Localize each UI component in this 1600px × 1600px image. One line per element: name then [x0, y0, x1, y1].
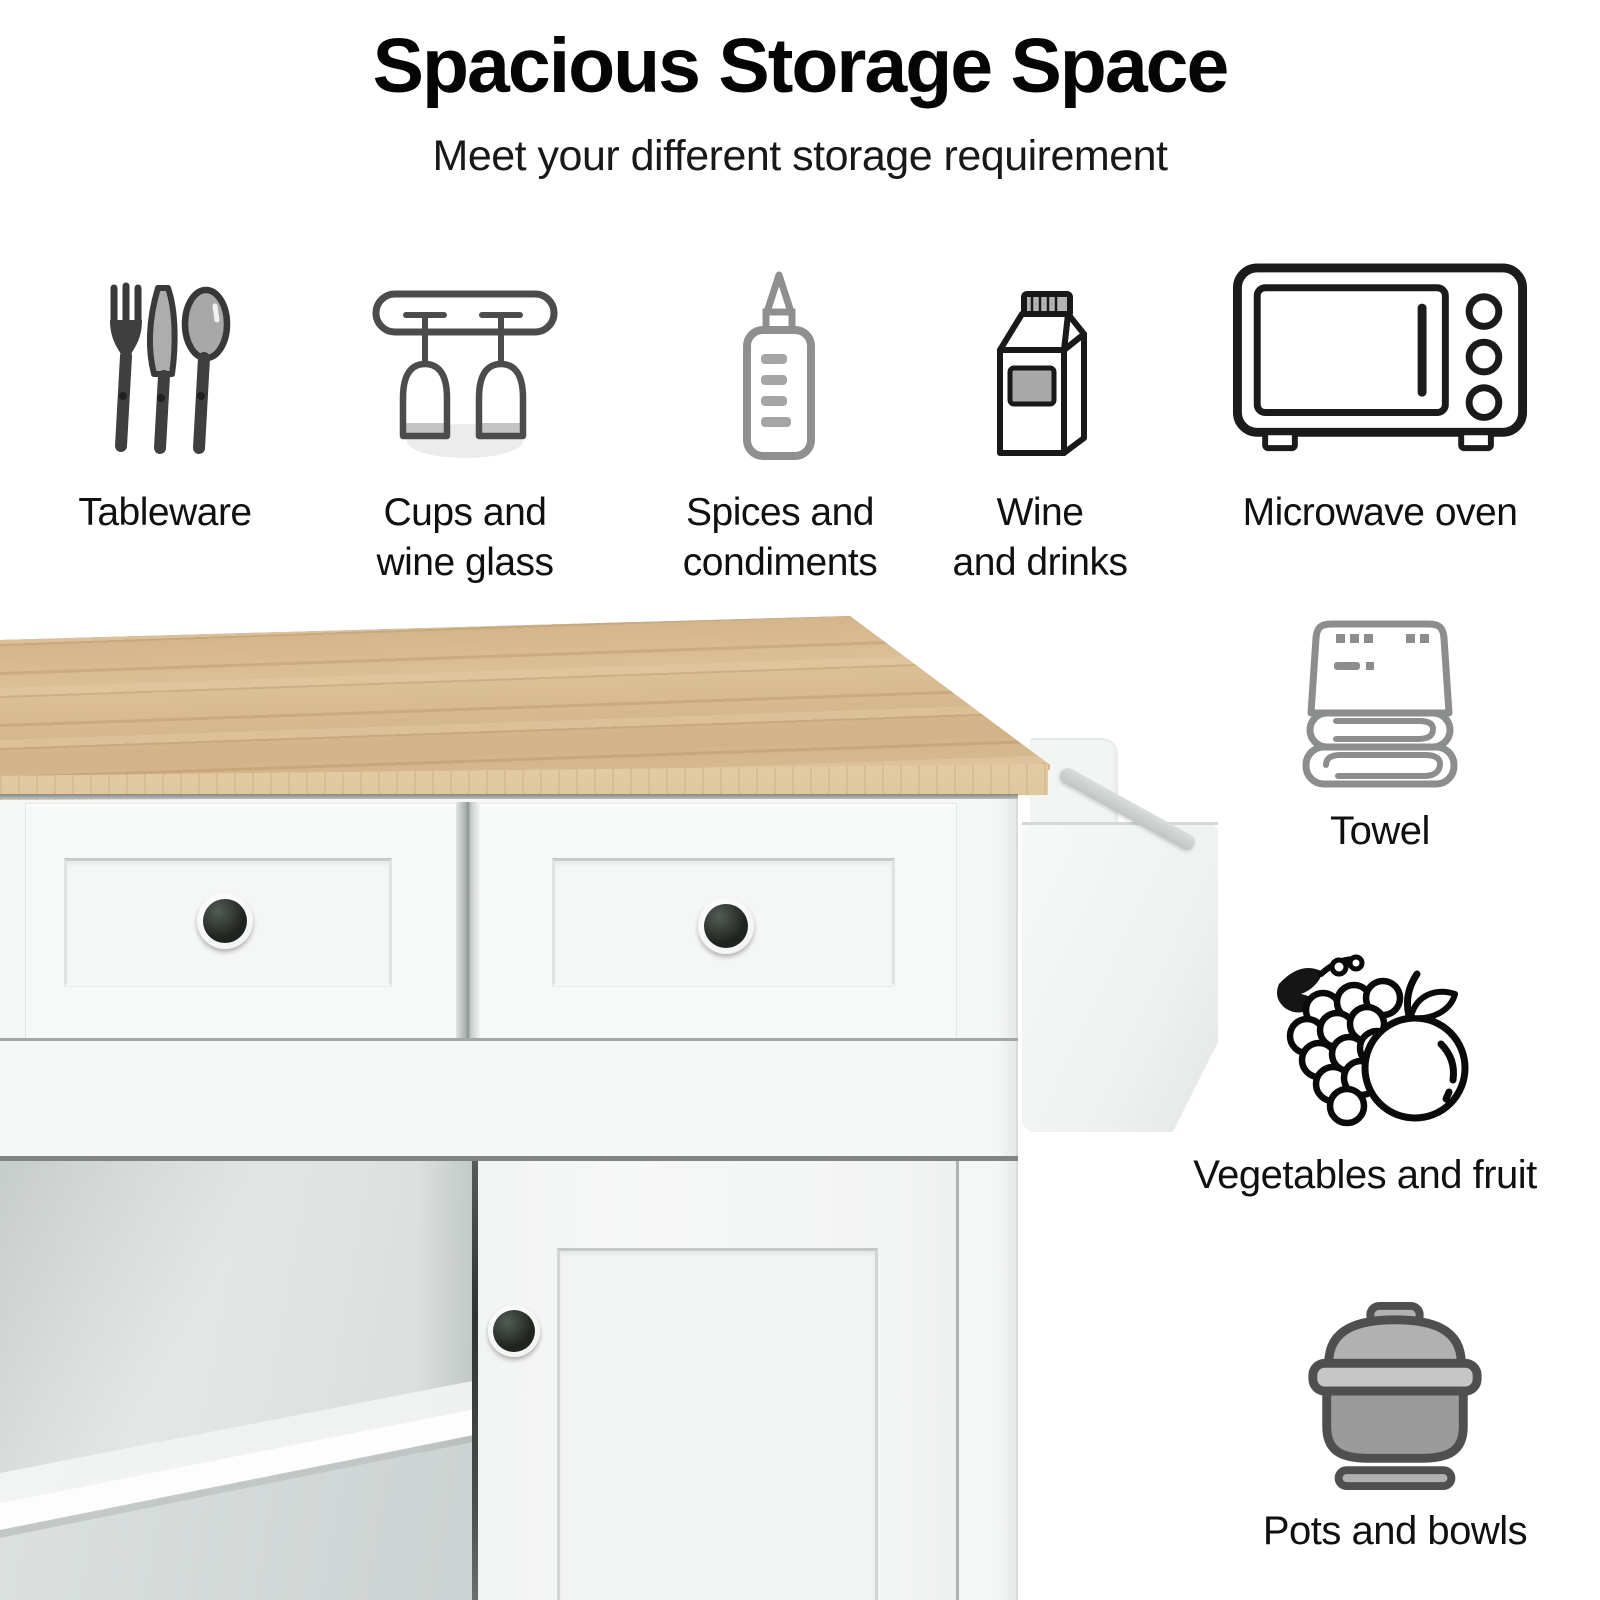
countertop-body-seam	[0, 794, 1018, 799]
side-rack-group	[0, 0, 1600, 1600]
kitchen-cart-photo	[0, 0, 1600, 1600]
side-spice-rack-panel	[1022, 822, 1218, 1132]
product-infographic: Spacious Storage Space Meet your differe…	[0, 0, 1600, 1600]
rack-panel-top-edge	[1022, 822, 1218, 825]
